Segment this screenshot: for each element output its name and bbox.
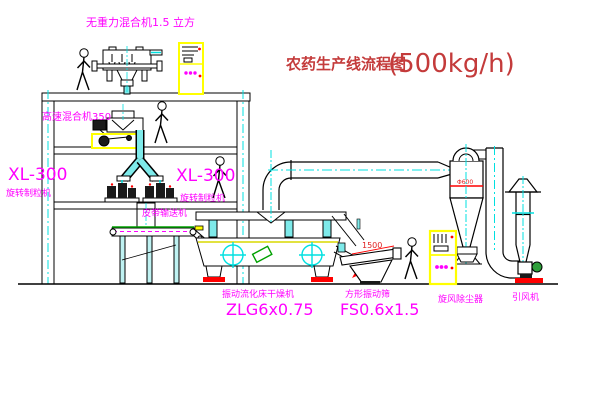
label-gravityless-mixer: 无重力混合机1.5 立方 [86, 15, 195, 29]
label-high-speed-mixer: 高速混合机350 [42, 110, 111, 123]
gravityless-mixer [92, 46, 162, 94]
diagram-svg: Φ600 [0, 0, 600, 403]
label-sieve-name: 方形振动筛 [345, 288, 390, 300]
label-granulator-model-mid: XL-300 [176, 166, 235, 186]
label-granulator-name-left: 旋转制粒机 [6, 187, 51, 199]
person-roof [77, 49, 90, 90]
person-ground [405, 238, 418, 279]
cyclone-dim-note: Φ600 [457, 179, 473, 186]
induced-draft-fan [515, 262, 543, 283]
control-cabinet-1 [179, 43, 203, 94]
label-granulator-model-left: XL-300 [8, 165, 67, 185]
person-floor2 [155, 102, 168, 143]
label-granulator-name-mid: 旋转制粒机 [180, 192, 225, 204]
label-cyclone: 旋风除尘器 [438, 293, 483, 305]
granulator-left [105, 180, 139, 202]
label-sieve-model: FS0.6x1.5 [340, 300, 419, 319]
high-speed-mixer [92, 104, 143, 148]
fan-inlet-pipe [486, 146, 520, 278]
belt-conveyor [110, 227, 196, 283]
sieve-dimension: 1500 [362, 241, 382, 250]
label-dryer-name: 振动流化床干燥机 [222, 288, 294, 300]
control-cabinet-2 [430, 231, 456, 284]
label-fan: 引风机 [512, 291, 539, 303]
exhaust-duct [263, 150, 452, 222]
label-dryer-model: ZLG6x0.75 [226, 300, 314, 319]
fluid-bed-dryer [196, 212, 358, 282]
label-belt-conveyor: 皮带输送机 [142, 207, 187, 219]
flow-diagram-canvas: Φ600 [0, 0, 600, 403]
granulator-right [143, 180, 177, 202]
diagram-title-capacity: (500kg/h) [388, 49, 515, 79]
